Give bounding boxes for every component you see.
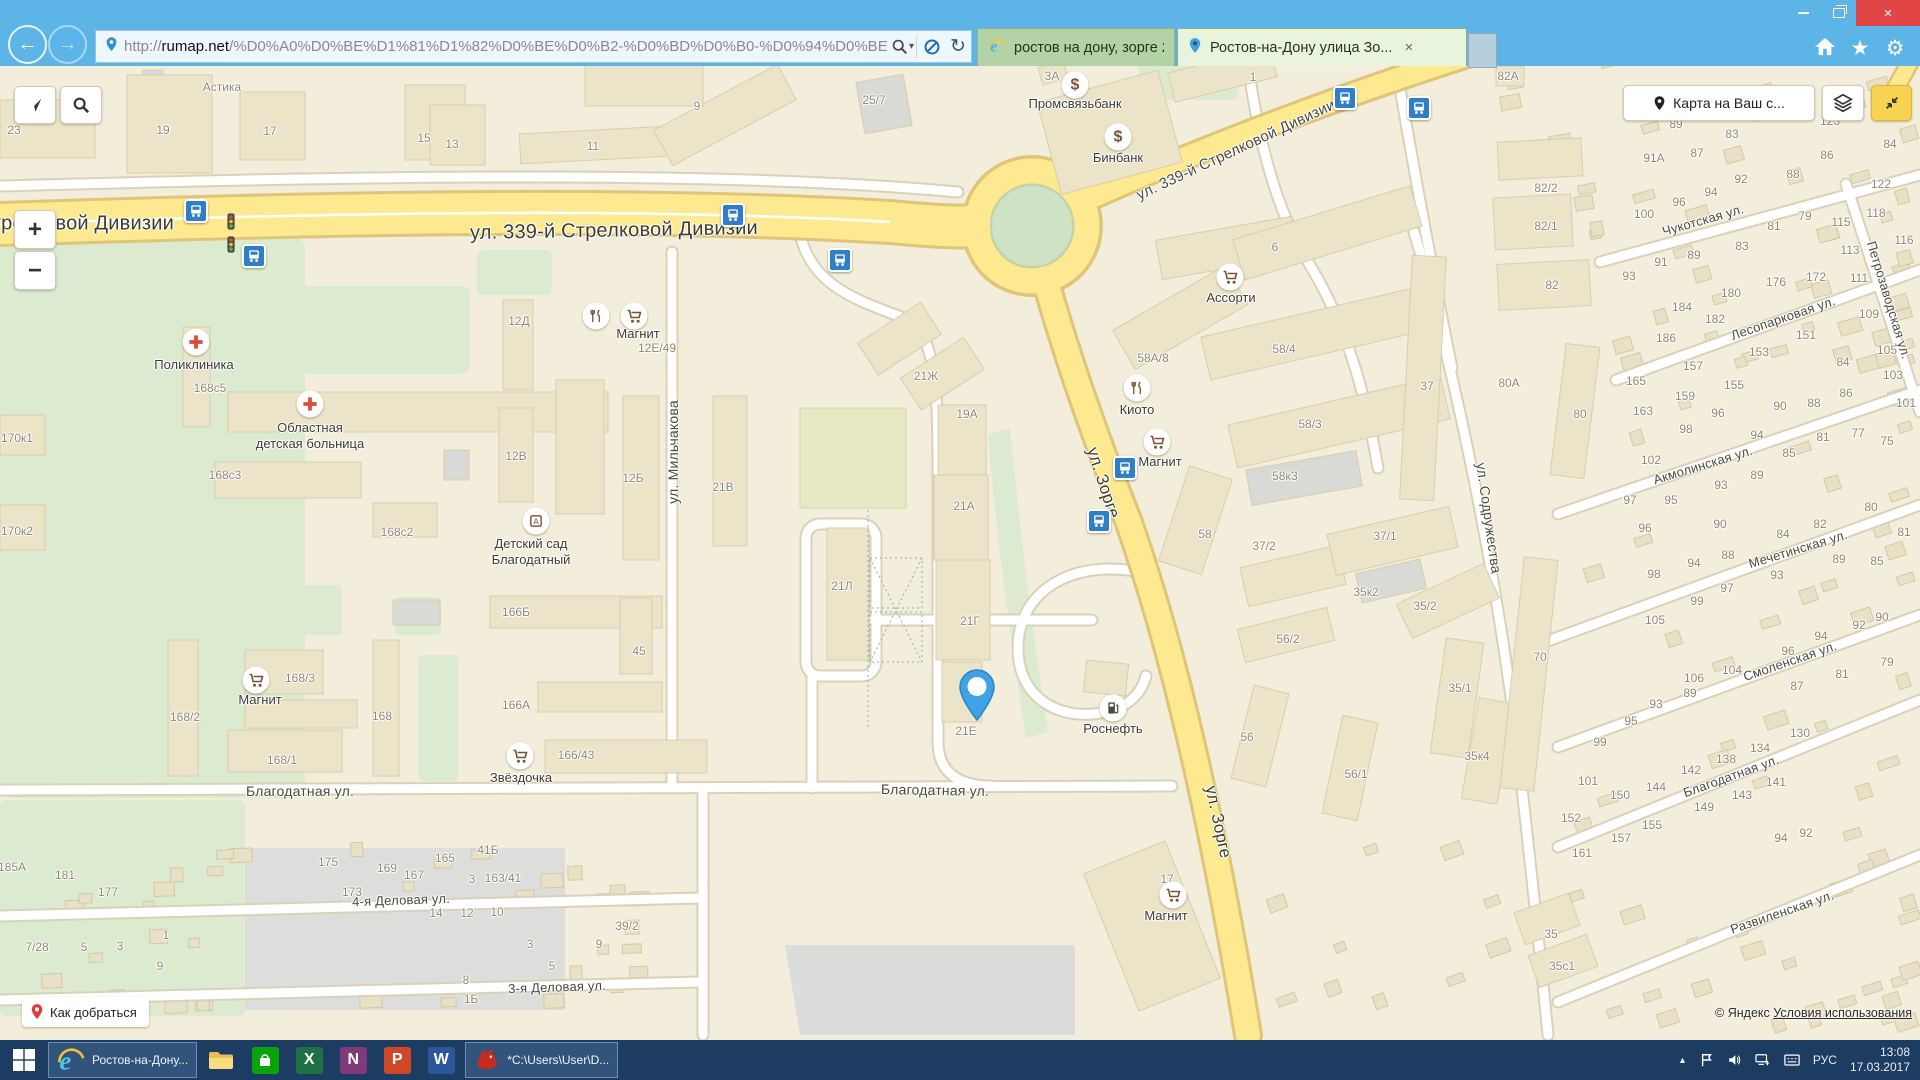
building-label: 58/3 — [1298, 417, 1321, 431]
layers-button[interactable] — [1822, 85, 1864, 121]
language-indicator[interactable]: РУС — [1813, 1053, 1837, 1067]
building-label: 102 — [1641, 453, 1661, 467]
building-label: 35/1 — [1448, 681, 1471, 695]
building-label: 99 — [1690, 594, 1703, 608]
building-label: 77 — [1851, 426, 1864, 440]
building-label: 88 — [1807, 396, 1820, 410]
building-label: 100 — [1634, 207, 1654, 221]
building-label: 157 — [1683, 359, 1703, 373]
building-label: 97 — [1720, 581, 1733, 595]
route-pin-icon — [30, 1003, 44, 1021]
folder-icon — [207, 1048, 235, 1072]
building-label: 81 — [1897, 525, 1910, 539]
building-label: 21Ж — [914, 369, 938, 383]
bus-stop-icon — [1087, 509, 1111, 533]
building-label: 163/41 — [485, 871, 522, 885]
building-label: 177 — [98, 885, 118, 899]
building-label: 163 — [1633, 404, 1653, 418]
poi-cart-icon — [1160, 882, 1187, 909]
building-label: 7/28 — [25, 940, 48, 954]
building-label: 19 — [156, 123, 169, 137]
building-label: 168/3 — [285, 671, 315, 685]
traffic-light-icon — [227, 212, 236, 236]
building-label: 84 — [1836, 355, 1849, 369]
building-label: 89 — [1683, 686, 1696, 700]
building-label: 39/2 — [615, 919, 638, 933]
traffic-light-icon — [227, 235, 236, 259]
refresh-button[interactable]: ↻ — [945, 34, 971, 60]
building-label: 103 — [1883, 368, 1903, 382]
building-label: 130 — [1790, 726, 1810, 740]
map-attribution: © Яндекс Условия использования — [1715, 1006, 1912, 1020]
building-label: 3 — [117, 939, 124, 953]
building-label: 182 — [1705, 312, 1725, 326]
building-label: 116 — [1894, 233, 1913, 247]
building-label: 56/1 — [1344, 767, 1367, 781]
tab-close-icon[interactable]: × — [1400, 37, 1417, 58]
building-label: 155 — [1724, 378, 1744, 392]
map-search-button[interactable] — [60, 86, 102, 124]
building-label: 25/7 — [862, 93, 885, 107]
building-label: 166А — [502, 698, 530, 712]
minimize-button[interactable] — [1786, 0, 1820, 26]
street-label: Благодатная ул. — [881, 781, 989, 799]
building-label: 186 — [1656, 331, 1676, 345]
building-label: 157 — [1611, 831, 1631, 845]
restore-button[interactable] — [1822, 0, 1856, 26]
svg-text:А: А — [533, 516, 539, 526]
building-label: 82А — [1497, 69, 1518, 83]
building-label: 35 — [1544, 927, 1557, 941]
hidden-icons-button[interactable]: ▲ — [1678, 1055, 1687, 1065]
taskbar-app-folder[interactable] — [199, 1040, 243, 1080]
dragon-icon — [474, 1047, 500, 1073]
building-label: 82/1 — [1534, 219, 1557, 233]
map-base-layer — [0, 0, 1920, 1080]
building-label: 56 — [1240, 730, 1253, 744]
bus-stop-icon — [721, 203, 745, 227]
url-path: /%D0%A0%D0%BE%D1%81%D1%82%D0%BE%D0%B2-%D… — [229, 38, 887, 55]
building-label: 168/1 — [267, 753, 297, 767]
bus-stop-icon — [1333, 86, 1357, 110]
building-label: 169 — [377, 861, 397, 875]
building-label: 1Б — [464, 992, 479, 1006]
building-label: 11 — [587, 139, 599, 153]
building-label: 92 — [1734, 172, 1747, 186]
building-label: 80А — [1498, 376, 1519, 390]
building-label: 87 — [1690, 146, 1703, 160]
building-label: 151 — [1796, 328, 1816, 342]
building-label: 35к2 — [1353, 585, 1378, 599]
building-label: 23 — [7, 123, 20, 137]
building-label: 93 — [1714, 478, 1727, 492]
building-label: 35/2 — [1413, 599, 1436, 613]
building-label: 166Б — [502, 605, 530, 619]
url-pin-icon — [105, 36, 118, 57]
building-label: 134 — [1750, 741, 1770, 755]
building-label: 58 — [1198, 527, 1211, 541]
building-label: 12 — [460, 906, 473, 920]
building-label: 165 — [1626, 374, 1646, 388]
building-label: 170к1 — [1, 431, 33, 445]
taskbar-apps: eРостов-на-Дону...XNPW*C:\Users\User\D..… — [0, 1040, 620, 1080]
building-label: 3 — [469, 872, 476, 886]
building-label: 91А — [1643, 151, 1664, 165]
building-label: 41Б — [477, 843, 498, 857]
building-label: 87 — [1790, 679, 1803, 693]
bus-stop-icon — [242, 244, 266, 268]
building-label: 97 — [1623, 493, 1636, 507]
building-label: 89 — [1750, 468, 1763, 482]
poi-label: Промсвязьбанк — [1028, 96, 1121, 112]
taskbar-app-ie[interactable]: eРостов-на-Дону... — [48, 1042, 197, 1078]
building-label: 168с3 — [209, 468, 242, 482]
network-icon[interactable] — [1755, 1053, 1771, 1067]
building-label: 106 — [1684, 671, 1704, 685]
url-domain: rumap.net — [162, 38, 230, 55]
building-label: 184 — [1672, 300, 1692, 314]
geolocate-button[interactable] — [14, 86, 56, 124]
poi-label: Ассорти — [1206, 290, 1255, 306]
poi-fuel-icon — [1100, 695, 1127, 722]
close-window-button[interactable]: × — [1856, 0, 1920, 26]
building-label: 12В — [505, 449, 526, 463]
field-divider — [916, 36, 917, 58]
building-label: 155 — [1642, 818, 1662, 832]
building-label: 37/1 — [1373, 529, 1396, 543]
building-label: 81 — [1767, 219, 1780, 233]
zoom-in-button[interactable]: + — [14, 210, 56, 249]
building-label: 94 — [1750, 428, 1763, 442]
taskbar-app-excel[interactable]: X — [287, 1040, 331, 1080]
clock-time: 13:08 — [1850, 1045, 1910, 1060]
building-label: 8 — [463, 973, 470, 987]
building-label: 13 — [445, 137, 458, 151]
building-label: 83 — [1735, 239, 1748, 253]
address-bar[interactable]: http://rumap.net/%D0%A0%D0%BE%D1%81%D1%8… — [95, 30, 972, 63]
building-label: 95 — [1624, 714, 1637, 728]
touch-keyboard-icon[interactable] — [1784, 1054, 1800, 1067]
building-label: 37 — [1420, 379, 1433, 393]
building-label: 142 — [1681, 763, 1701, 777]
building-label: 161 — [1572, 846, 1592, 860]
bus-stop-icon — [1407, 96, 1431, 120]
building-label: 185А — [0, 860, 26, 874]
building-label: 58кЗ — [1272, 469, 1298, 483]
building-label: 9 — [157, 959, 164, 973]
geolocate-arrow-icon — [26, 96, 44, 114]
building-label: 1 — [163, 928, 170, 942]
word-icon: W — [428, 1047, 455, 1074]
building-label: 35к4 — [1464, 749, 1489, 763]
stop-button[interactable] — [919, 34, 945, 60]
browser-chrome: × ← → http://rumap.net/%D0%A0%D0%BE%D1%8… — [0, 0, 1920, 66]
building-label: 165 — [435, 851, 455, 865]
share-map-label: Карта на Ваш с... — [1673, 95, 1785, 111]
building-label: 150 — [1610, 788, 1630, 802]
building-label: 168с2 — [381, 525, 414, 539]
building-label: 89 — [1687, 248, 1700, 262]
search-result-marker[interactable] — [958, 669, 996, 726]
building-label: 88 — [1786, 167, 1799, 181]
building-label: 105 — [1645, 613, 1665, 627]
taskbar-app-label: *C:\Users\User\D... — [507, 1053, 609, 1067]
building-label: 175 — [318, 855, 338, 869]
tab-title: Ростов-на-Дону улица Зо... — [1210, 40, 1392, 56]
building-label: 86 — [1839, 386, 1852, 400]
search-dropdown-caret[interactable]: ▾ — [909, 41, 914, 52]
map-canvas[interactable]: ул. 339-й Стрелковой Дивизииул. 339-й Ст… — [0, 0, 1920, 1080]
powerpoint-icon: P — [384, 1047, 411, 1074]
copyright-label: © Яндекс — [1715, 1006, 1770, 1020]
building-label: 79 — [1798, 209, 1811, 223]
building-label: 3 — [527, 937, 534, 951]
share-pin-icon — [1653, 95, 1666, 112]
building-label: 82/2 — [1534, 181, 1557, 195]
building-label: 79 — [1880, 655, 1893, 669]
building-label: 176 — [1766, 275, 1786, 289]
building-label: 180 — [1721, 286, 1741, 300]
map-pin-favicon — [1188, 37, 1202, 59]
poi-label: Киото — [1120, 402, 1155, 418]
poi-food-icon — [583, 303, 610, 330]
building-label: 96 — [1672, 195, 1685, 209]
action-center-flag-icon[interactable] — [1700, 1053, 1714, 1067]
building-label: 37/2 — [1252, 539, 1275, 553]
poi-food-icon — [1124, 375, 1151, 402]
browser-tab-1[interactable]: eростов на дону, зорге 21Е — ... — [977, 28, 1175, 66]
bus-stop-icon — [1113, 456, 1137, 480]
poi-cart-icon — [1144, 429, 1171, 456]
taskbar-app-onenote[interactable]: N — [331, 1040, 375, 1080]
building-label: 58А/8 — [1137, 351, 1168, 365]
building-label: 98 — [1679, 422, 1692, 436]
home-button[interactable] — [1810, 36, 1840, 62]
building-label: 170к2 — [1, 524, 33, 538]
tab-title: ростов на дону, зорге 21Е — ... — [1014, 40, 1164, 56]
building-label: 6 — [1272, 240, 1279, 254]
building-label: 45 — [632, 644, 645, 658]
building-label: 152 — [1561, 811, 1581, 825]
building-label: 94 — [1774, 831, 1787, 845]
poi-label: Магнит — [1144, 908, 1187, 924]
building-label: 12Б — [622, 471, 643, 485]
taskbar-app-dragon[interactable]: *C:\Users\User\D... — [465, 1042, 618, 1078]
building-label: 1 — [1250, 70, 1257, 84]
poi-med-icon — [183, 329, 210, 356]
building-label: 93 — [1649, 697, 1662, 711]
poi-label: Магнит — [616, 326, 659, 342]
building-label: 92 — [1852, 618, 1865, 632]
building-label: 12Е/49 — [638, 341, 676, 355]
building-label: 96 — [1781, 644, 1794, 658]
poi-label: Звёздочка — [490, 770, 552, 786]
building-label: 19А — [956, 407, 977, 421]
building-label: 101 — [1896, 396, 1916, 410]
excel-icon: X — [296, 1047, 323, 1074]
building-label: 94 — [1687, 556, 1700, 570]
building-label: 149 — [1694, 800, 1714, 814]
route-button[interactable]: Как добраться — [22, 997, 149, 1027]
back-button[interactable]: ← — [8, 25, 47, 64]
poi-label: Магнит — [238, 692, 281, 708]
building-label: 14 — [429, 906, 442, 920]
building-label: 58/4 — [1272, 342, 1295, 356]
street-label: Благодатная ул. — [246, 783, 354, 799]
building-label: 144 — [1646, 780, 1666, 794]
building-label: 35с1 — [1549, 959, 1575, 973]
poi-bank-icon: $ — [1062, 72, 1089, 99]
building-label: 80 — [1573, 407, 1586, 421]
building-label: 82 — [1813, 517, 1826, 531]
layers-icon — [1832, 92, 1854, 114]
building-label: 21Л — [831, 579, 852, 593]
building-label: 90 — [1875, 610, 1888, 624]
building-label: 81 — [1835, 667, 1848, 681]
new-tab-button[interactable] — [1468, 33, 1497, 68]
building-label: 21Г — [960, 614, 980, 628]
building-label: 173 — [342, 885, 362, 899]
poi-kinder-icon: А — [523, 508, 550, 535]
building-label: 95 — [1664, 493, 1677, 507]
building-label: 143 — [1732, 788, 1752, 802]
building-label: 12Д — [508, 314, 529, 328]
building-label: 93 — [1622, 269, 1635, 283]
building-label: 70 — [1533, 650, 1546, 664]
poi-label: Детский сад Благодатный — [492, 536, 571, 567]
building-label: 101 — [1578, 774, 1598, 788]
poi-label: Магнит — [1138, 454, 1181, 470]
building-label: 17 — [263, 124, 276, 138]
building-label: 83 — [1725, 127, 1738, 141]
building-label: 9 — [694, 99, 701, 113]
poi-label: Роснефть — [1083, 721, 1142, 737]
poi-cart-icon — [243, 667, 270, 694]
building-label: 5 — [549, 959, 556, 973]
building-label: 5 — [81, 940, 88, 954]
building-label: 94 — [1814, 629, 1827, 643]
building-label: 118 — [1866, 206, 1885, 220]
taskbar-app-label: Ростов-на-Дону... — [92, 1053, 188, 1067]
building-label: 85 — [1870, 554, 1883, 568]
building-label: 84 — [1883, 137, 1896, 151]
poi-med-icon — [297, 391, 324, 418]
building-label: 21А — [953, 499, 974, 513]
building-label: 109 — [1859, 307, 1879, 321]
building-label: 138 — [1716, 752, 1736, 766]
building-label: 92 — [1799, 826, 1812, 840]
building-label: 181 — [55, 868, 75, 882]
building-label: 90 — [1713, 517, 1726, 531]
poi-bank-icon: $ — [1105, 124, 1132, 151]
building-label: 86 — [1820, 148, 1833, 162]
building-label: 85 — [1782, 446, 1795, 460]
store-icon — [252, 1047, 279, 1074]
ie-favicon: e — [988, 37, 1006, 59]
building-label: 113 — [1840, 243, 1859, 257]
building-label: 111 — [1850, 271, 1868, 285]
start-icon — [12, 1048, 36, 1072]
poi-cart-icon — [1217, 264, 1244, 291]
url-scheme: http:// — [124, 38, 162, 55]
search-icon — [72, 96, 90, 114]
building-label: 82 — [1545, 278, 1558, 292]
favorites-star-button[interactable]: ★ — [1845, 36, 1875, 61]
settings-gear-button[interactable]: ⚙ — [1880, 36, 1910, 61]
onenote-icon: N — [340, 1047, 367, 1074]
building-label: 168с5 — [194, 381, 227, 395]
poi-cart-icon — [507, 743, 534, 770]
terms-link[interactable]: Условия использования — [1773, 1006, 1912, 1020]
building-label: 141 — [1766, 775, 1786, 789]
building-label: 98 — [1647, 567, 1660, 581]
route-button-label: Как добраться — [50, 1005, 137, 1020]
building-label: 56/2 — [1276, 632, 1299, 646]
ie-icon: e — [57, 1046, 85, 1074]
building-label: Астика — [203, 80, 241, 94]
share-map-button[interactable]: Карта на Ваш с... — [1623, 85, 1815, 121]
building-label: 81 — [1816, 430, 1829, 444]
building-label: 75 — [1880, 434, 1893, 448]
building-label: 122 — [1871, 177, 1891, 191]
building-label: 168/2 — [170, 710, 200, 724]
building-label: 84 — [1776, 527, 1789, 541]
zoom-out-button[interactable]: − — [14, 251, 56, 290]
building-label: 91 — [1654, 255, 1667, 269]
taskbar-app-powerpoint[interactable]: P — [375, 1040, 419, 1080]
building-label: 15 — [417, 131, 430, 145]
street-label: ул. Мильчакова — [665, 400, 681, 504]
building-label: 167 — [404, 868, 424, 882]
building-label: 172 — [1806, 270, 1826, 284]
building-label: 105 — [1877, 343, 1897, 357]
browser-tab-2[interactable]: Ростов-на-Дону улица Зо...× — [1177, 28, 1467, 66]
start-button[interactable] — [2, 1040, 46, 1080]
building-label: 159 — [1675, 389, 1695, 403]
poi-label: Поликлиника — [154, 357, 233, 373]
building-label: 80 — [1864, 500, 1877, 514]
building-label: 96 — [1711, 406, 1724, 420]
taskbar-app-store[interactable] — [243, 1040, 287, 1080]
building-label: 89 — [1832, 552, 1845, 566]
bus-stop-icon — [828, 248, 852, 272]
building-label: 96 — [1638, 521, 1651, 535]
forward-button[interactable]: → — [48, 25, 87, 64]
building-label: 99 — [1593, 735, 1606, 749]
marker-building-label: 21Е — [955, 724, 976, 738]
building-label: 90 — [1773, 399, 1786, 413]
building-label: 115 — [1831, 215, 1850, 229]
poi-label: Областная детская больница — [256, 420, 364, 451]
clock[interactable]: 13:08 17.03.2017 — [1850, 1045, 1910, 1075]
building-label: 168 — [372, 709, 392, 723]
volume-icon[interactable] — [1727, 1053, 1742, 1067]
building-label: 104 — [1722, 663, 1742, 677]
building-label: 88 — [1721, 548, 1734, 562]
bus-stop-icon — [184, 199, 208, 223]
poi-label: Бинбанк — [1093, 150, 1143, 166]
system-tray: ▲ РУС 13:08 17.03.2017 — [1678, 1045, 1920, 1075]
building-label: 166/43 — [558, 748, 595, 762]
building-label: 153 — [1749, 345, 1769, 359]
building-label: 9 — [596, 937, 603, 951]
taskbar-app-word[interactable]: W — [419, 1040, 463, 1080]
building-label: 10 — [490, 905, 503, 919]
collapse-map-button[interactable] — [1871, 85, 1912, 121]
building-label: 94 — [1704, 185, 1717, 199]
building-label: 21В — [712, 480, 733, 494]
collapse-arrows-icon — [1883, 94, 1901, 112]
